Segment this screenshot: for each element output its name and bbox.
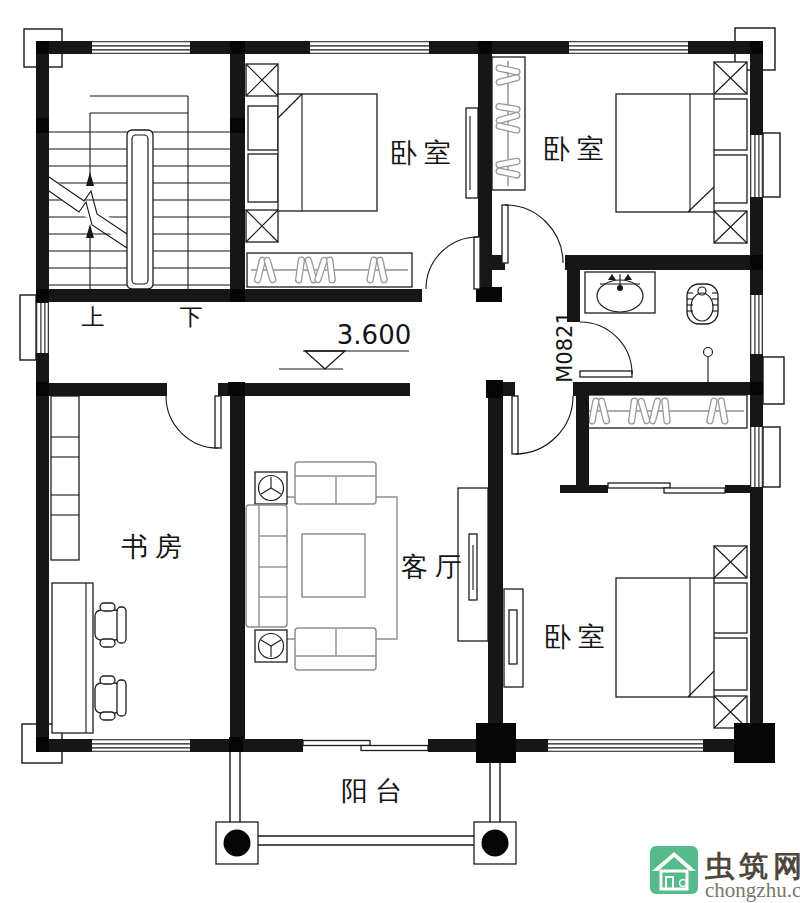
watermark-site-url: chongzhu.cn — [705, 878, 800, 902]
window-sill-left — [20, 295, 36, 360]
window — [750, 427, 763, 487]
tv-panel — [466, 108, 478, 198]
door-leaf — [215, 396, 221, 448]
bed — [616, 578, 714, 697]
door-swing-arc — [426, 237, 478, 289]
sliding-door-closet — [608, 483, 725, 493]
door-code-label: M0821 — [553, 311, 577, 383]
door-bathroom — [580, 322, 632, 377]
bedside-cabinet — [712, 583, 747, 633]
study-furniture — [51, 396, 126, 733]
elevation-value: 3.600 — [337, 320, 411, 350]
door-leaf — [502, 205, 508, 263]
arrow-up-icon — [86, 172, 94, 186]
door-bedroom1 — [426, 237, 480, 289]
room-label-living: 客厅 — [401, 552, 469, 582]
sofa-loveseat — [295, 462, 376, 504]
window — [750, 295, 763, 354]
balcony-column — [216, 822, 258, 864]
room-label-bedroom3: 卧室 — [544, 622, 612, 652]
room-label-bedroom2: 卧室 — [543, 134, 611, 164]
closet-left-wall — [576, 382, 589, 493]
column-large — [476, 723, 516, 763]
study-living-divider-wall — [230, 383, 245, 739]
stairwell-right-wall — [230, 54, 245, 302]
room-label-balcony: 阳台 — [341, 776, 409, 806]
bed — [278, 94, 377, 211]
door-swing-arc — [515, 396, 573, 454]
door-bedroom2 — [502, 205, 563, 263]
floor-drain-icon — [704, 348, 713, 385]
stair-landing-edge — [90, 96, 188, 113]
plant-fan-icon — [255, 472, 287, 504]
study-top-wall — [36, 383, 167, 396]
door-leaf — [512, 396, 518, 454]
floor-plan-page: 卧室 卧室 卧室 书房 客厅 阳台 上 下 3.600 M0821 虫筑网 ch… — [0, 0, 800, 903]
stair-handrail — [127, 130, 153, 289]
window — [548, 739, 703, 752]
balcony-structure — [216, 752, 516, 864]
sink-icon — [585, 272, 655, 313]
pilaster-right-middle — [763, 357, 784, 404]
sofa-long — [246, 505, 287, 627]
column-large — [734, 723, 775, 763]
bedside-cabinet — [248, 154, 278, 202]
door-swing-arc — [505, 205, 563, 263]
sofa-loveseat — [295, 628, 376, 670]
bedroom2-furniture — [492, 57, 747, 243]
bedroom3-left-wall — [488, 382, 503, 739]
bedside-cabinet — [248, 106, 278, 150]
door-leaf — [474, 237, 480, 289]
window — [750, 135, 763, 197]
window — [310, 41, 429, 54]
window — [92, 739, 190, 752]
bathroom-top-wall — [565, 255, 763, 270]
bedroom3-furniture — [504, 546, 747, 728]
bathroom-bottom-wall — [582, 382, 750, 395]
door-swing-arc — [580, 322, 632, 374]
closet-wardrobe — [582, 395, 747, 428]
bed — [616, 94, 714, 212]
door-study — [166, 396, 221, 448]
bedside-cabinet — [712, 638, 747, 690]
office-chair — [95, 603, 126, 647]
stair-up-label: 上 — [82, 304, 105, 330]
room-label-bedroom1: 卧室 — [390, 138, 458, 168]
elevation-marker: 3.600 — [279, 320, 411, 369]
door-swing-arc — [166, 396, 218, 448]
window — [92, 41, 190, 54]
window — [36, 303, 49, 353]
window — [569, 41, 688, 54]
hall-top-wall — [36, 289, 422, 302]
tv-panel — [509, 610, 517, 664]
sliding-door — [303, 739, 428, 752]
floor-plan-drawing: 卧室 卧室 卧室 书房 客厅 阳台 上 下 3.600 M0821 虫筑网 ch… — [0, 0, 800, 903]
window-sill-right-bedroom2 — [763, 133, 780, 197]
window-sill-right-closet — [763, 427, 780, 487]
balcony-column — [474, 822, 516, 864]
bedside-cabinet — [712, 99, 747, 150]
plant-fan-icon — [255, 630, 287, 662]
door-bedroom3 — [512, 396, 573, 454]
desk — [52, 583, 93, 733]
squat-toilet-icon — [687, 284, 718, 324]
stairwell — [49, 96, 230, 289]
door-leaf — [580, 371, 632, 377]
office-chair — [95, 676, 126, 720]
watermark: 虫筑网 chongzhu.cn — [650, 846, 800, 902]
bedroom1-wardrobe — [247, 253, 412, 287]
coffee-table — [302, 534, 365, 597]
doors — [166, 205, 725, 493]
bedside-cabinet — [712, 155, 747, 203]
bookshelf — [51, 396, 79, 560]
room-label-study: 书房 — [121, 532, 189, 562]
stair-down-label: 下 — [180, 304, 203, 330]
